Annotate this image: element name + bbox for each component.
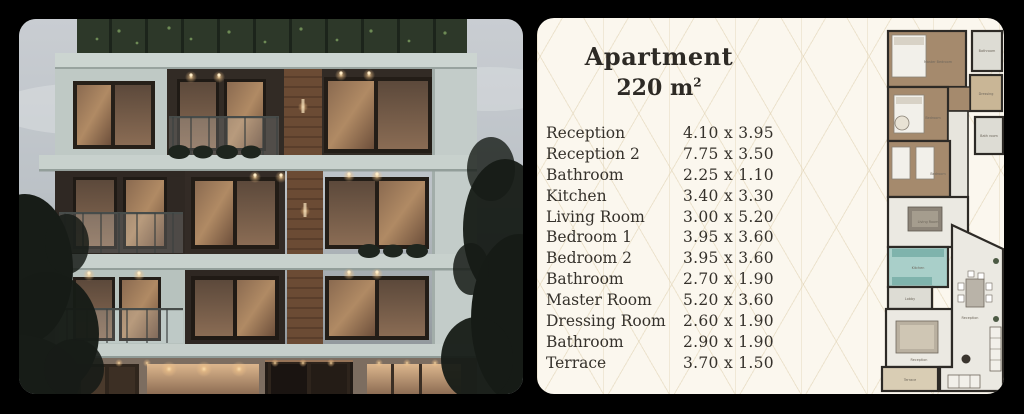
slab-4 — [39, 344, 477, 358]
room-size: 3.95 x 3.60 — [683, 249, 774, 267]
room-row: Bathroom 2.25 x 1.10 — [546, 166, 876, 187]
svg-text:Living Room: Living Room — [918, 220, 940, 224]
room-name: Bathroom — [546, 270, 683, 288]
room-row: Kitchen 3.40 x 3.30 — [546, 187, 876, 208]
apartment-spec-card: Apartment 220 m2 Reception 4.10 x 3.95 R… — [537, 18, 1004, 394]
svg-text:Bedroom: Bedroom — [925, 116, 941, 120]
room-size: 3.40 x 3.30 — [683, 187, 774, 205]
building-photo-card — [19, 19, 523, 394]
svg-text:Bath room: Bath room — [980, 134, 998, 138]
apartment-area: 220 m2 — [537, 75, 781, 101]
room-name: Bathroom — [546, 333, 683, 351]
room-size: 2.60 x 1.90 — [683, 312, 774, 330]
svg-text:Kitchen: Kitchen — [912, 266, 925, 270]
svg-text:Bathroom: Bathroom — [979, 49, 996, 53]
title-block: Apartment 220 m2 — [537, 42, 781, 101]
room-name: Dressing Room — [546, 312, 683, 330]
area-superscript: 2 — [693, 76, 701, 90]
room-row: Bedroom 2 3.95 x 3.60 — [546, 249, 876, 270]
floor-2 — [55, 268, 429, 344]
svg-text:Dressing: Dressing — [979, 92, 994, 96]
room-row: Dressing Room 2.60 x 1.90 — [546, 312, 876, 333]
apartment-title: Apartment — [537, 42, 781, 71]
floor-3 — [55, 170, 429, 254]
building-render — [19, 19, 523, 394]
room-name: Reception 2 — [546, 145, 683, 163]
floor-plan: Master Bedroom Bathroom Dressing Bedroom… — [878, 29, 1004, 393]
room-size: 2.25 x 1.10 — [683, 166, 774, 184]
room-size: 3.95 x 3.60 — [683, 228, 774, 246]
svg-text:Lobby: Lobby — [905, 297, 915, 301]
svg-text:Bedroom: Bedroom — [930, 172, 946, 176]
room-size: 3.70 x 1.50 — [683, 354, 774, 372]
room-row: Reception 2 7.75 x 3.50 — [546, 145, 876, 166]
plan-hall — [948, 87, 970, 111]
room-dimension-list: Reception 4.10 x 3.95 Reception 2 7.75 x… — [546, 124, 876, 375]
room-size: 3.00 x 5.20 — [683, 208, 774, 226]
room-row: Living Room 3.00 x 5.20 — [546, 208, 876, 229]
page-background: Apartment 220 m2 Reception 4.10 x 3.95 R… — [0, 0, 1024, 414]
room-name: Master Room — [546, 291, 683, 309]
room-name: Bedroom 1 — [546, 228, 683, 246]
floor-plan-drawing: Master Bedroom Bathroom Dressing Bedroom… — [878, 29, 1004, 393]
room-row: Bathroom 2.70 x 1.90 — [546, 270, 876, 291]
room-size: 2.90 x 1.90 — [683, 333, 774, 351]
room-name: Kitchen — [546, 187, 683, 205]
room-name: Bathroom — [546, 166, 683, 184]
room-size: 4.10 x 3.95 — [683, 124, 774, 142]
room-size: 5.20 x 3.60 — [683, 291, 774, 309]
room-name: Living Room — [546, 208, 683, 226]
ground-floor — [55, 358, 477, 394]
svg-text:Reception: Reception — [962, 316, 979, 320]
room-row: Bedroom 1 3.95 x 3.60 — [546, 228, 876, 249]
slab-2 — [39, 155, 477, 171]
svg-text:Master Bedroom: Master Bedroom — [924, 60, 953, 64]
roof-plants — [77, 19, 467, 53]
room-row: Reception 4.10 x 3.95 — [546, 124, 876, 145]
balcony-planters — [358, 244, 428, 258]
svg-text:Reception: Reception — [911, 358, 928, 362]
area-value: 220 m — [616, 75, 693, 101]
room-size: 2.70 x 1.90 — [683, 270, 774, 288]
roof-slab — [55, 53, 477, 69]
room-size: 7.75 x 3.50 — [683, 145, 774, 163]
svg-text:Terrace: Terrace — [903, 378, 916, 382]
room-name: Bedroom 2 — [546, 249, 683, 267]
room-row: Bathroom 2.90 x 1.90 — [546, 333, 876, 354]
room-row: Terrace 3.70 x 1.50 — [546, 354, 876, 375]
room-name: Terrace — [546, 354, 683, 372]
floor-4 — [55, 69, 437, 155]
room-name: Reception — [546, 124, 683, 142]
room-row: Master Room 5.20 x 3.60 — [546, 291, 876, 312]
